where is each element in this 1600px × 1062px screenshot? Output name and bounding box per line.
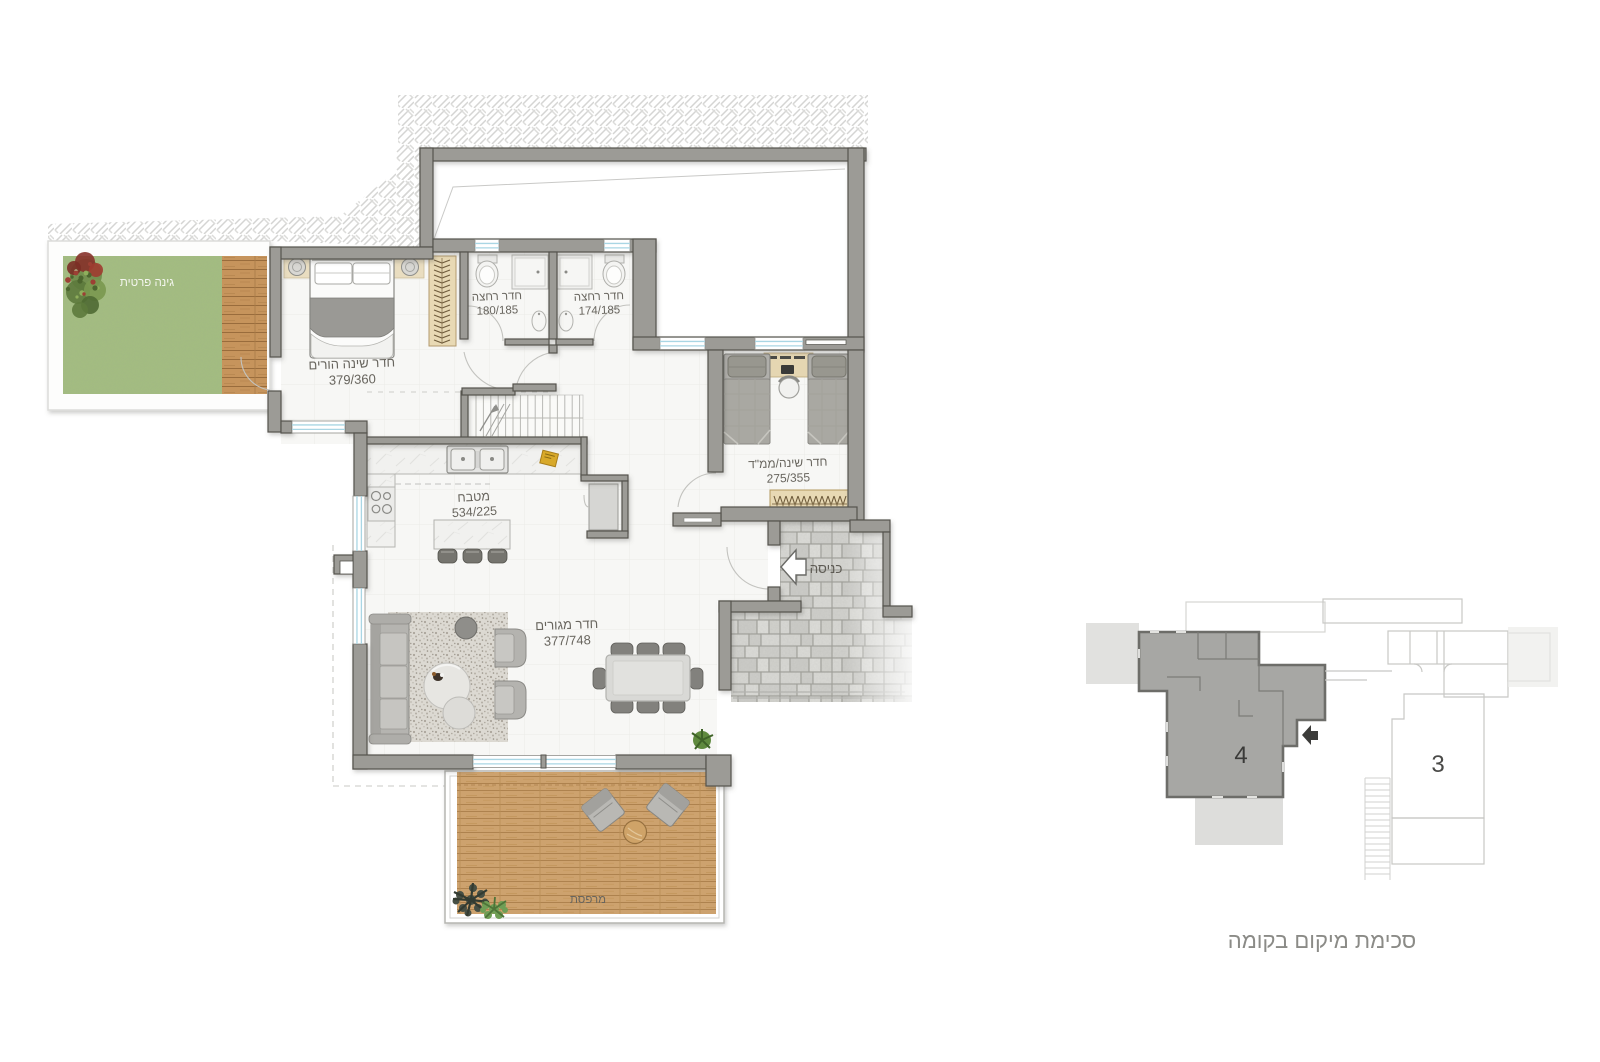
svg-text:חדר מגורים: חדר מגורים [535, 616, 599, 633]
svg-text:180/185: 180/185 [476, 304, 518, 317]
svg-text:379/360: 379/360 [329, 371, 376, 388]
svg-text:חדר רחצה: חדר רחצה [574, 290, 625, 304]
svg-text:3: 3 [1431, 751, 1444, 778]
svg-text:מטבח: מטבח [457, 489, 490, 505]
svg-text:534/225: 534/225 [452, 504, 498, 520]
svg-text:חדר שינה/ממ"ד: חדר שינה/ממ"ד [748, 455, 828, 472]
svg-text:חדר רחצה: חדר רחצה [472, 290, 523, 304]
svg-text:גינה פרטית: גינה פרטית [120, 277, 174, 289]
svg-text:377/748: 377/748 [544, 632, 591, 649]
svg-text:174/185: 174/185 [578, 304, 620, 317]
svg-text:4: 4 [1234, 742, 1247, 769]
svg-text:כניסה: כניסה [810, 561, 843, 576]
svg-text:חדר שינה הורים: חדר שינה הורים [308, 354, 395, 372]
svg-text:מרפסת: מרפסת [570, 894, 606, 906]
svg-text:סכימת מיקום בקומה: סכימת מיקום בקומה [1228, 928, 1416, 953]
svg-text:275/355: 275/355 [766, 470, 810, 486]
